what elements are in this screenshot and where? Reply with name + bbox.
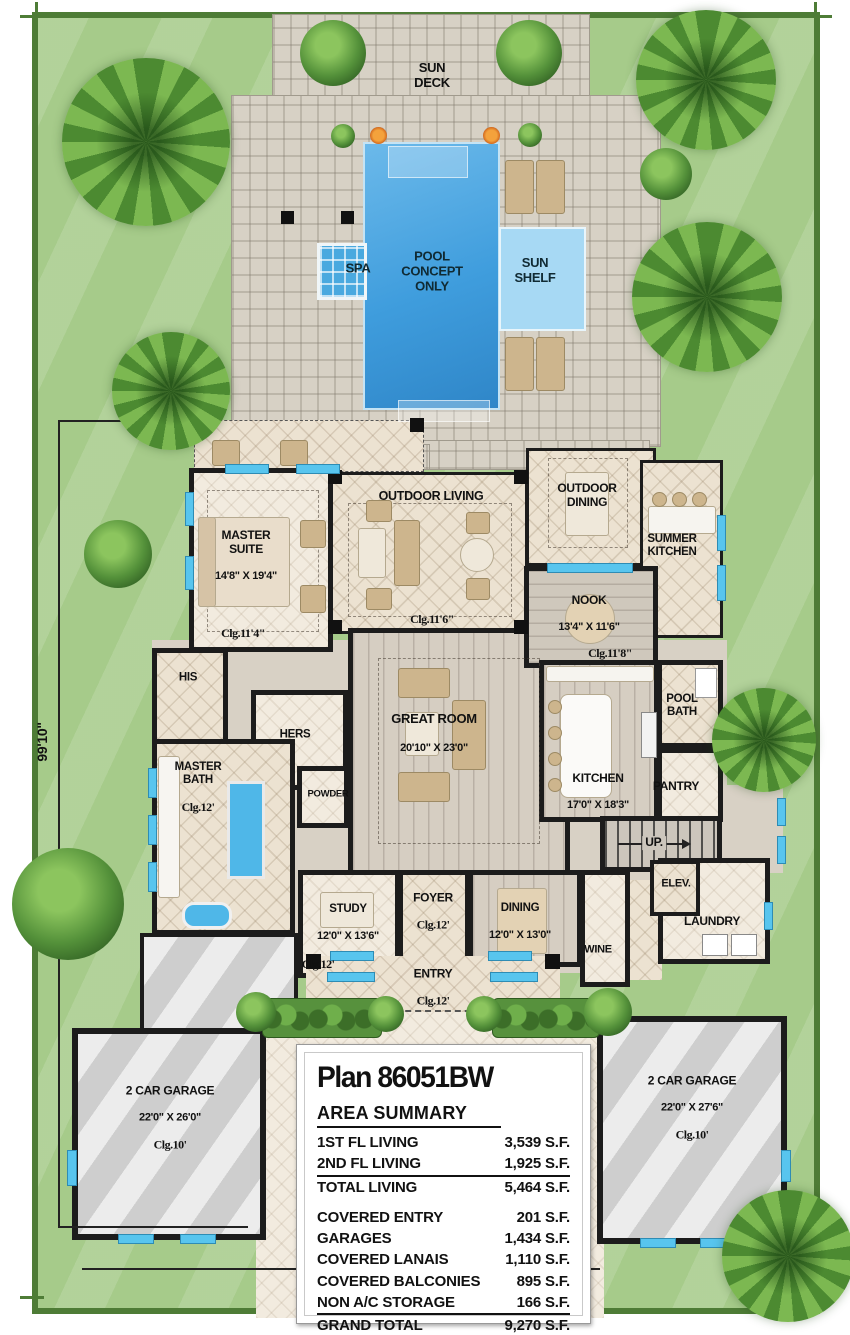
room-name: FOYER <box>413 891 453 905</box>
window <box>717 565 726 601</box>
porch-chair <box>212 440 240 466</box>
bush <box>300 20 366 86</box>
pool-step-ledge <box>388 146 468 178</box>
window <box>490 972 538 982</box>
room-dims: 14'8" X 19'4" <box>215 570 277 583</box>
bush <box>640 148 692 200</box>
window <box>777 798 786 826</box>
room-name: 2 CAR GARAGE <box>126 1084 214 1098</box>
lot-depth-dimension: 99'10" <box>34 722 50 761</box>
lounge-chair <box>505 160 534 214</box>
lounge-chair <box>536 337 565 391</box>
bush <box>84 520 152 588</box>
summary-row: GARAGES 1,434 S.F. <box>317 1228 570 1249</box>
room-dims: 17'0" X 18'3" <box>567 799 629 812</box>
window <box>547 563 633 573</box>
bar-stool <box>652 492 667 507</box>
room-wine <box>580 870 630 987</box>
bush <box>236 992 276 1032</box>
pergola-column <box>341 211 354 224</box>
room-label-elevator: ELEV. <box>661 878 690 891</box>
summer-kitchen-counter <box>648 506 716 534</box>
bedroom-chair <box>300 520 326 548</box>
fire-bowl-icon <box>483 127 500 144</box>
summary-label: 2ND FL LIVING <box>317 1153 421 1174</box>
summary-value: 5,464 S.F. <box>504 1177 570 1198</box>
outdoor-coffee-table <box>358 528 386 578</box>
room-dims: 22'0" X 26'0" <box>126 1112 214 1125</box>
stairs-arrowhead <box>682 839 691 849</box>
hedge <box>262 998 382 1038</box>
summary-row: COVERED BALCONIES 895 S.F. <box>317 1271 570 1292</box>
palm-tree <box>712 688 816 792</box>
room-name: MASTER SUITE <box>215 529 277 557</box>
summary-value: 201 S.F. <box>517 1207 570 1228</box>
summary-row: TOTAL LIVING 5,464 S.F. <box>317 1175 570 1198</box>
summary-value: 166 S.F. <box>517 1292 570 1313</box>
room-name: STUDY <box>317 903 379 916</box>
room-label-pool-bath: POOL BATH <box>666 693 697 719</box>
room-label-pantry: PANTRY <box>653 780 699 794</box>
sofa <box>398 772 450 802</box>
dimension-line-vertical <box>58 420 60 1228</box>
lot-corner-tick <box>35 1290 38 1314</box>
summary-value: 895 S.F. <box>517 1271 570 1292</box>
window <box>781 1150 791 1182</box>
room-name: NOOK <box>558 594 619 608</box>
window <box>148 768 157 798</box>
room-label-study: STUDY 12'0" X 13'6" <box>317 890 379 956</box>
bar-stool <box>672 492 687 507</box>
summary-row: COVERED LANAIS 1,110 S.F. <box>317 1249 570 1270</box>
plan-summary-inner: Plan 86051BW AREA SUMMARY 1ST FL LIVING … <box>304 1052 583 1316</box>
room-name: 2 CAR GARAGE <box>648 1074 736 1088</box>
deck-planter <box>518 123 542 147</box>
floor-plan-canvas: 99'10" <box>0 0 850 1335</box>
outdoor-chair <box>366 588 392 610</box>
bar-stool <box>548 752 562 766</box>
ceiling-label-nook: Clg.11'8" <box>588 647 632 661</box>
summary-label: COVERED ENTRY <box>317 1207 443 1228</box>
porch-column <box>410 418 424 432</box>
kitchen-counter <box>546 666 654 682</box>
palm-tree <box>636 10 776 150</box>
summary-row: 1ST FL LIVING 3,539 S.F. <box>317 1132 570 1153</box>
room-name: MASTER BATH <box>175 761 222 787</box>
summary-label: COVERED LANAIS <box>317 1249 448 1270</box>
room-label-wine: WINE <box>584 944 612 957</box>
room-clg: Clg.10' <box>648 1128 736 1142</box>
room-dims: 12'0" X 13'6" <box>317 930 379 943</box>
dimension-line-tick <box>58 1226 248 1228</box>
sun-shelf-label: SUN SHELF <box>514 256 555 286</box>
spa-label: SPA <box>346 262 371 277</box>
dryer <box>731 934 757 956</box>
room-label-his: HIS <box>179 671 197 684</box>
room-clg: Clg.12' <box>414 995 453 1009</box>
room-label-stairs: UP. <box>642 836 666 850</box>
bedroom-chair <box>300 585 326 613</box>
bush <box>584 988 632 1036</box>
outdoor-table <box>460 538 494 572</box>
summary-row: GRAND TOTAL 9,270 S.F. <box>317 1313 570 1335</box>
room-name: KITCHEN <box>567 772 629 786</box>
summary-row: NON A/C STORAGE 166 S.F. <box>317 1292 570 1313</box>
palm-tree <box>62 58 230 226</box>
bush <box>368 996 404 1032</box>
fire-bowl-icon <box>370 127 387 144</box>
window <box>717 515 726 551</box>
window <box>764 902 773 930</box>
summary-label: NON A/C STORAGE <box>317 1292 455 1313</box>
lanai-column <box>514 470 528 484</box>
room-label-hers: HERS <box>280 728 311 741</box>
lot-corner-tick <box>814 2 817 26</box>
room-label-garage-left: 2 CAR GARAGE 22'0" X 26'0" Clg.10' <box>126 1070 214 1165</box>
summary-value: 3,539 S.F. <box>504 1132 570 1153</box>
room-dims: 22'0" X 27'6" <box>648 1102 736 1115</box>
deck-planter <box>331 124 355 148</box>
bar-stool <box>548 700 562 714</box>
summary-label: GRAND TOTAL <box>317 1315 423 1335</box>
pergola-column <box>281 211 294 224</box>
shower <box>227 781 265 879</box>
summary-row: COVERED ENTRY 201 S.F. <box>317 1207 570 1228</box>
outdoor-chair <box>466 578 490 600</box>
room-label-nook: NOOK 13'4" X 11'6" <box>558 580 619 648</box>
lot-corner-tick <box>35 2 38 26</box>
window <box>640 1238 676 1248</box>
summary-label: COVERED BALCONIES <box>317 1271 480 1292</box>
outdoor-sofa <box>394 520 420 586</box>
summary-value: 1,110 S.F. <box>505 1249 570 1270</box>
room-name: DINING <box>489 902 551 915</box>
window <box>118 1234 154 1244</box>
bar-stool <box>548 778 562 792</box>
window <box>67 1150 77 1186</box>
room-clg: Clg.12' <box>413 919 453 933</box>
bathtub <box>182 902 232 929</box>
window <box>777 836 786 864</box>
area-summary-heading: AREA SUMMARY <box>317 1103 501 1128</box>
room-label-outdoor-living: OUTDOOR LIVING <box>379 489 484 503</box>
window <box>327 972 375 982</box>
lounge-chair <box>505 337 534 391</box>
palm-tree <box>632 222 782 372</box>
room-label-outdoor-dining: OUTDOOR DINING <box>557 482 616 510</box>
room-label-great-room: GREAT ROOM 20'10" X 23'0" <box>391 697 477 769</box>
lot-corner-tick <box>20 1296 44 1299</box>
plan-summary-box: Plan 86051BW AREA SUMMARY 1ST FL LIVING … <box>296 1044 591 1324</box>
summary-value: 1,434 S.F. <box>504 1228 570 1249</box>
outdoor-chair <box>466 512 490 534</box>
room-clg: Clg.12' <box>175 801 222 815</box>
room-label-entry: ENTRY Clg.12' <box>414 954 453 1023</box>
lanai-column <box>514 620 528 634</box>
washer <box>702 934 728 956</box>
room-his-closet <box>152 648 228 744</box>
bed-pillows <box>198 517 216 607</box>
lanai-column <box>328 620 342 634</box>
window <box>185 556 194 590</box>
room-name: ENTRY <box>414 967 453 981</box>
range <box>641 712 657 758</box>
entry-column <box>545 954 560 969</box>
bush <box>496 20 562 86</box>
summary-label: 1ST FL LIVING <box>317 1132 418 1153</box>
pool-label: POOL CONCEPT ONLY <box>401 250 462 295</box>
tree <box>12 848 124 960</box>
palm-tree <box>112 332 230 450</box>
room-label-laundry: LAUNDRY <box>684 915 740 929</box>
room-label-foyer: FOYER Clg.12' <box>413 878 453 947</box>
bar-stool <box>692 492 707 507</box>
sun-deck-label: SUN DECK <box>414 61 450 91</box>
lot-corner-tick <box>20 15 44 18</box>
summary-label: TOTAL LIVING <box>317 1177 417 1198</box>
room-label-garage-right: 2 CAR GARAGE 22'0" X 27'6" Clg.10' <box>648 1060 736 1155</box>
bush <box>466 996 502 1032</box>
window <box>148 862 157 892</box>
room-label-summer-kitchen: SUMMER KITCHEN <box>647 533 696 559</box>
summary-value: 1,925 S.F. <box>504 1153 570 1174</box>
summary-label: GARAGES <box>317 1228 391 1249</box>
window <box>185 492 194 526</box>
room-label-powder: POWDER <box>308 790 349 801</box>
bar-stool <box>548 726 562 740</box>
room-dims: 20'10" X 23'0" <box>391 742 477 755</box>
room-dims: 12'0" X 13'0" <box>489 929 551 942</box>
room-label-master-bath: MASTER BATH Clg.12' <box>175 748 222 828</box>
window <box>180 1234 216 1244</box>
room-label-master-suite: MASTER SUITE 14'8" X 19'4" <box>215 515 277 597</box>
lounge-chair <box>536 160 565 214</box>
plan-title: Plan 86051BW <box>317 1061 555 1095</box>
pool-bath-sink <box>695 668 717 698</box>
porch-chair <box>280 440 308 466</box>
window <box>148 815 157 845</box>
room-clg: Clg.10' <box>126 1138 214 1152</box>
room-name: GREAT ROOM <box>391 712 477 727</box>
ceiling-label-study: Clg.12' <box>302 958 335 972</box>
lot-corner-tick <box>808 15 832 18</box>
summary-value: 9,270 S.F. <box>504 1315 570 1335</box>
outdoor-chair <box>366 500 392 522</box>
summary-row: 2ND FL LIVING 1,925 S.F. <box>317 1153 570 1174</box>
palm-tree <box>722 1190 850 1322</box>
ceiling-label-outdoor-living: Clg.11'6" <box>410 613 454 627</box>
window <box>225 464 269 474</box>
room-dims: 13'4" X 11'6" <box>558 621 619 634</box>
room-label-dining: DINING 12'0" X 13'0" <box>489 889 551 955</box>
window <box>296 464 340 474</box>
room-label-kitchen: KITCHEN 17'0" X 18'3" <box>567 758 629 826</box>
ceiling-label-master-suite: Clg.11'4" <box>221 627 265 641</box>
sofa <box>398 668 450 698</box>
